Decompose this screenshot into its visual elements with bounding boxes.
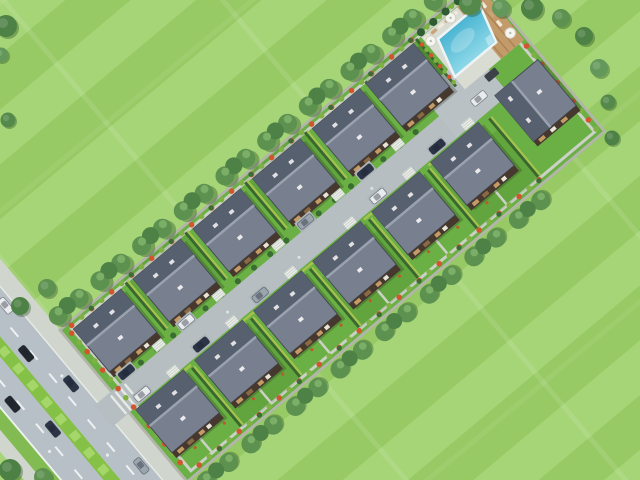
aerial-render: Aerial top-down 3D render of a gated res… — [0, 0, 640, 480]
scene-svg: Aerial top-down 3D render of a gated res… — [0, 0, 640, 480]
